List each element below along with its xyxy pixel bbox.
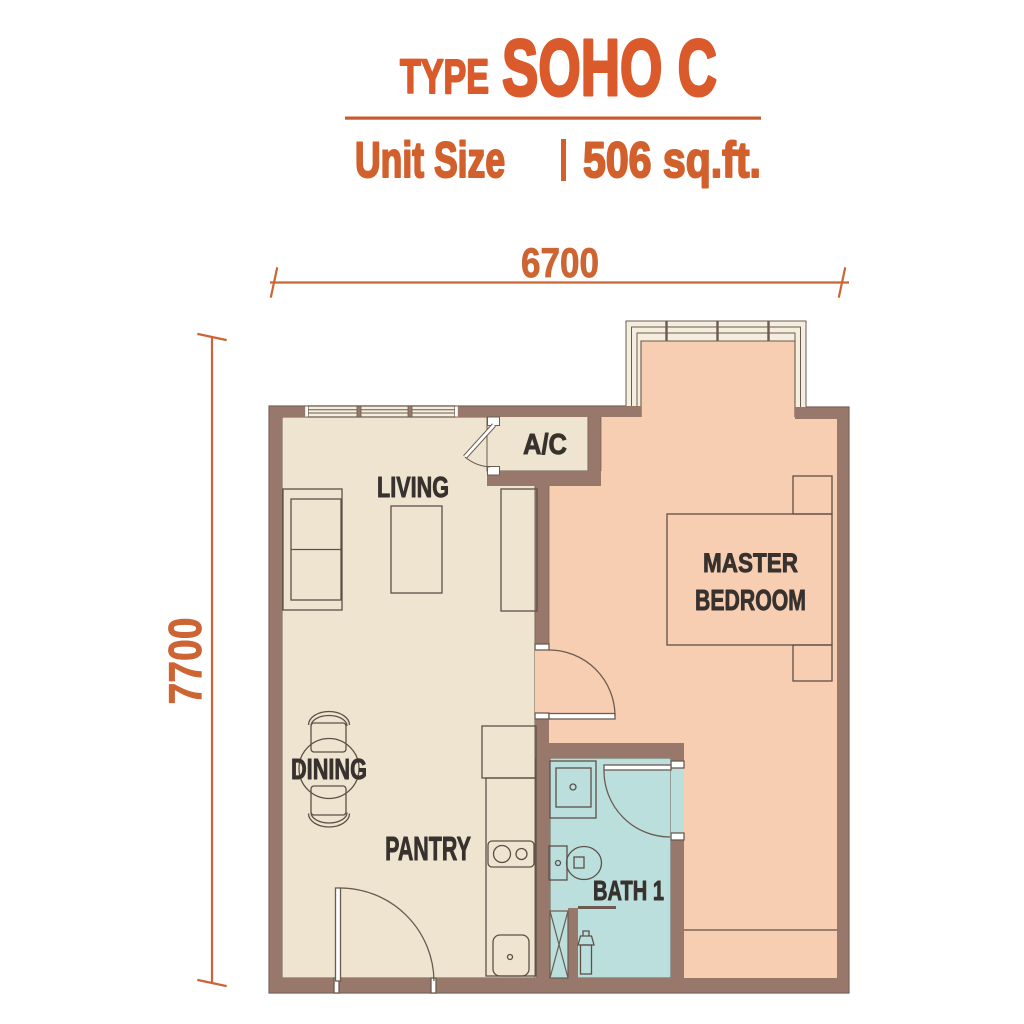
svg-text:7700: 7700 <box>160 618 212 705</box>
svg-text:Unit Size: Unit Size <box>355 133 505 188</box>
svg-text:TYPE: TYPE <box>400 49 489 103</box>
svg-text:PANTRY: PANTRY <box>385 830 471 867</box>
svg-text:A/C: A/C <box>523 427 567 460</box>
svg-text:506 sq.ft.: 506 sq.ft. <box>583 132 761 188</box>
svg-text:MASTER: MASTER <box>703 549 798 578</box>
svg-text:SOHO C: SOHO C <box>502 23 717 113</box>
svg-text:BEDROOM: BEDROOM <box>695 585 806 617</box>
svg-text:6700: 6700 <box>521 240 599 287</box>
svg-text:LIVING: LIVING <box>377 472 449 504</box>
svg-text:DINING: DINING <box>291 754 367 786</box>
svg-text:BATH 1: BATH 1 <box>593 876 664 907</box>
